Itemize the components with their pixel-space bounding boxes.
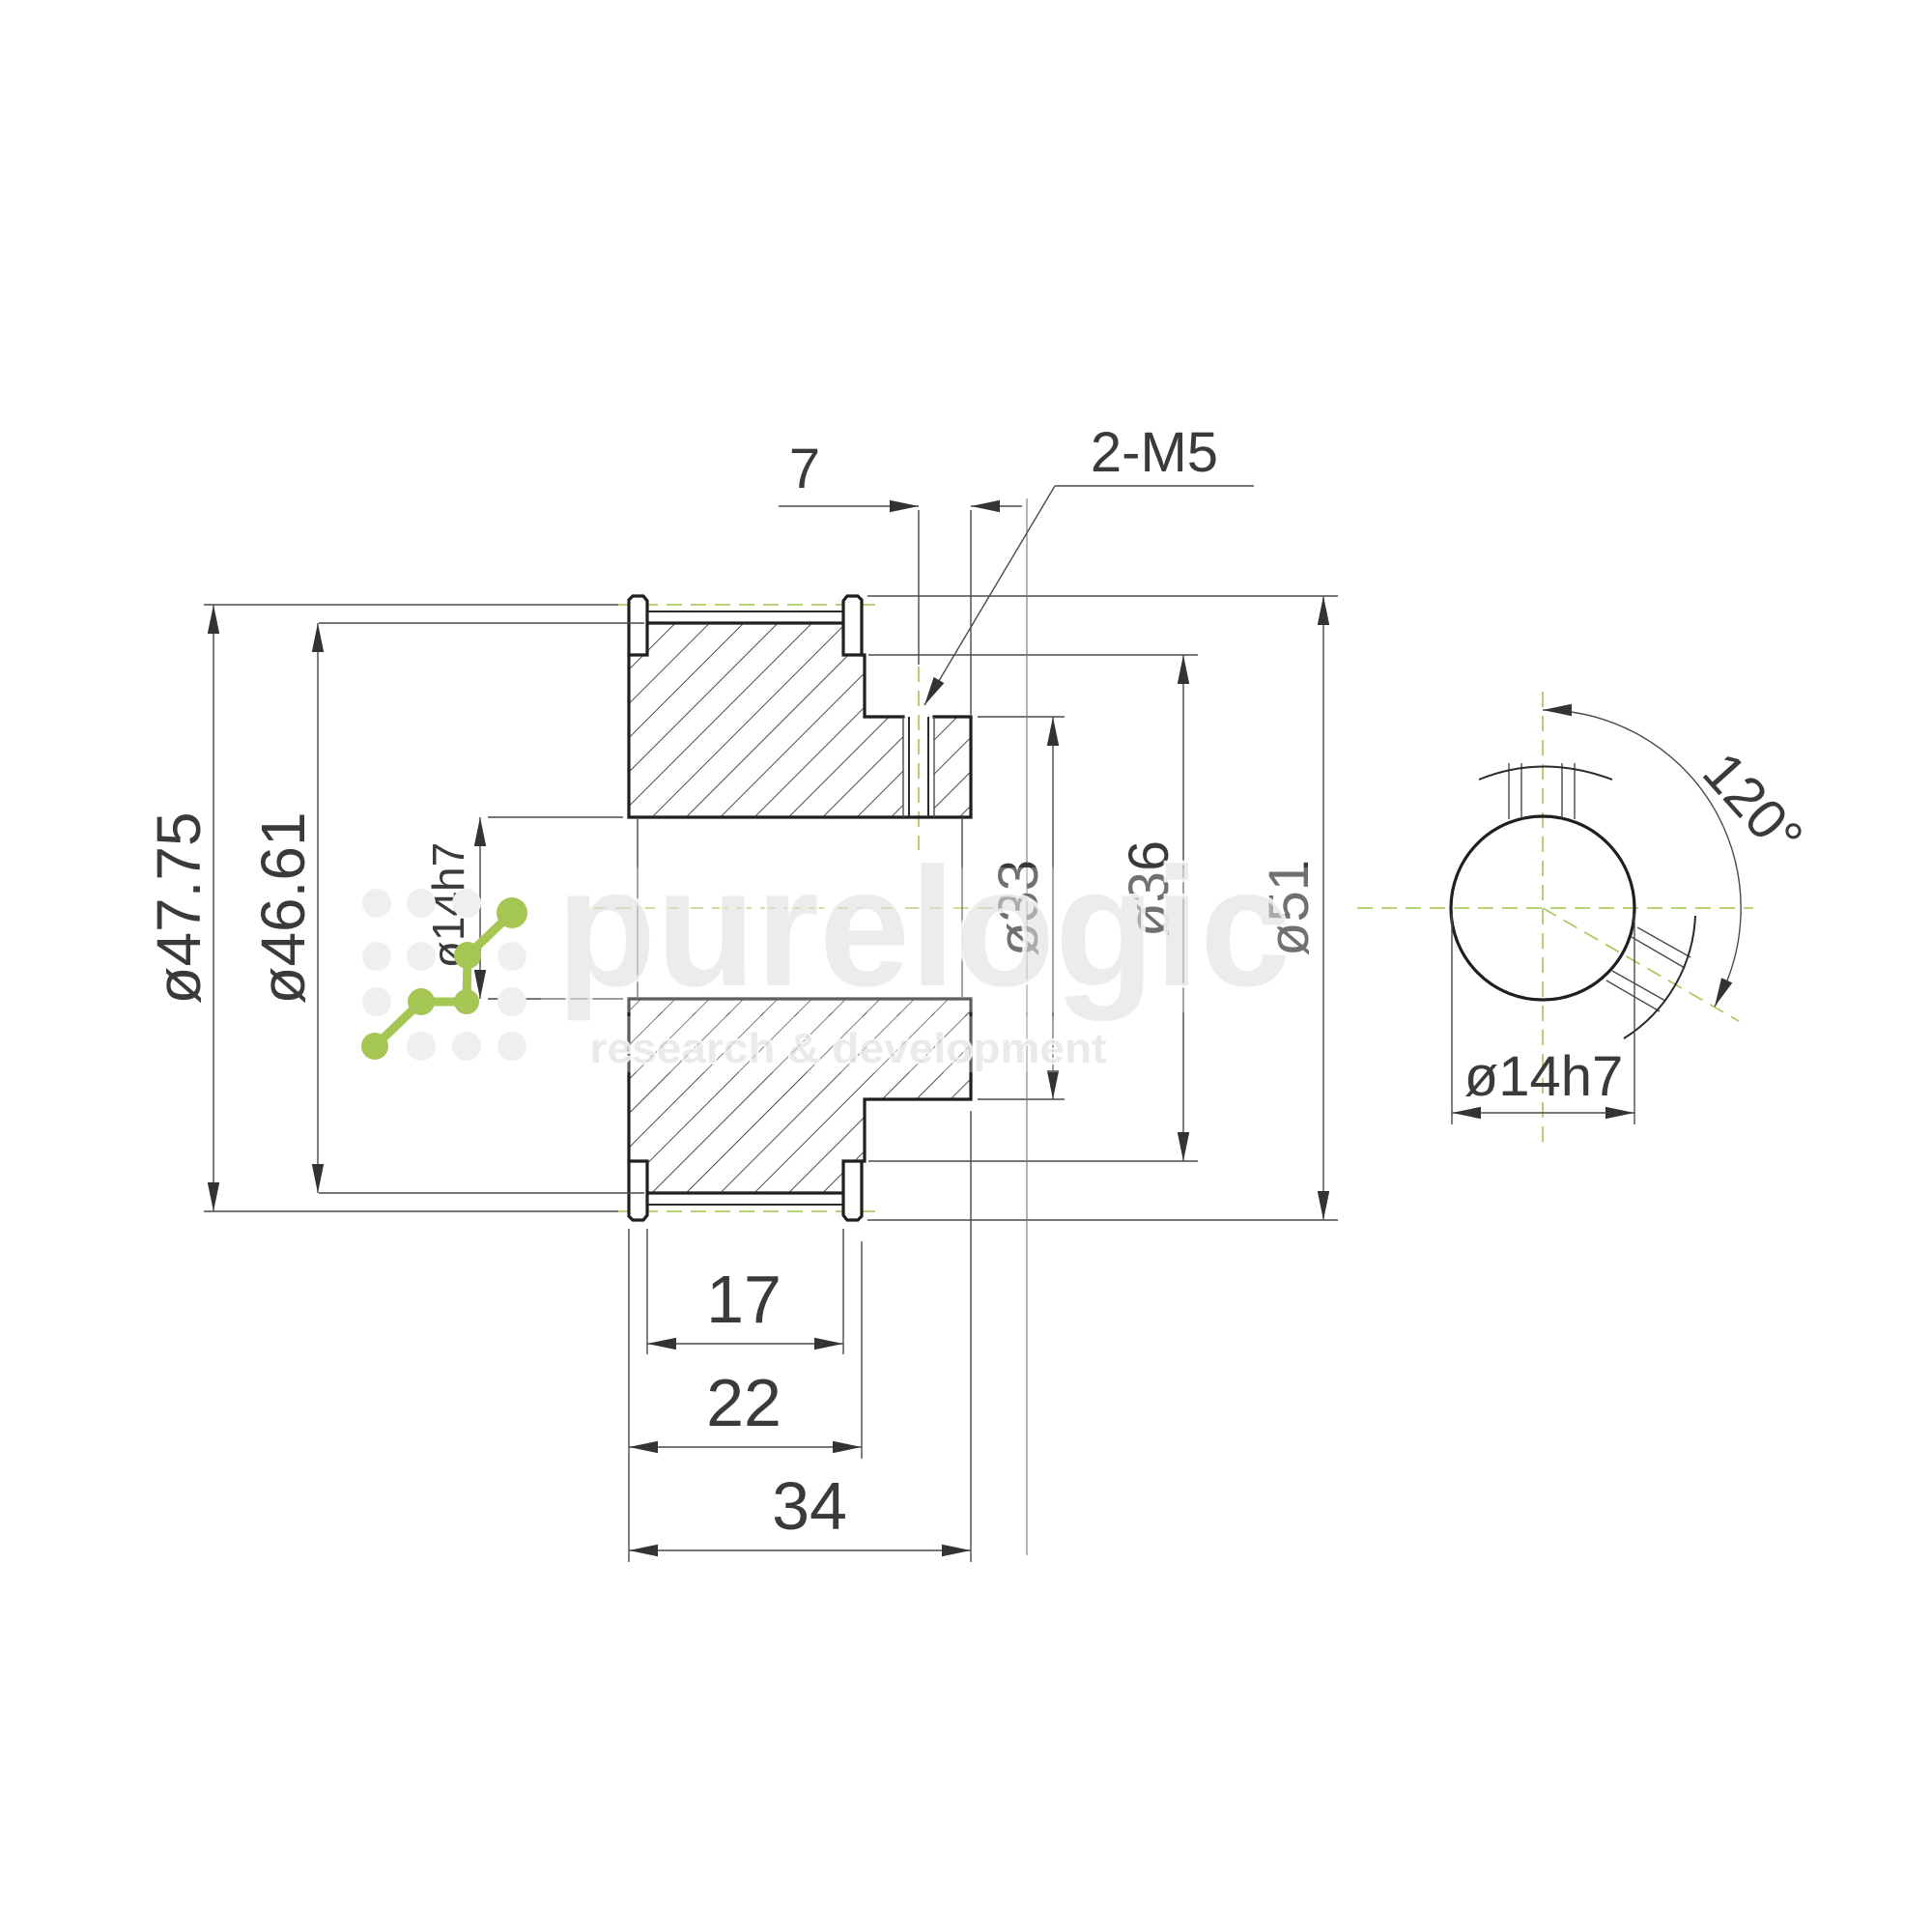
dim-belt-width: 17 (647, 1262, 843, 1350)
flange-cap-bottom-left (629, 1161, 647, 1220)
setscrew-hole-120 (1606, 916, 1695, 1038)
dim-bore-end-label: ø14h7 (1464, 1045, 1623, 1108)
dim-outer-diameter: ø46.61 (248, 623, 324, 1193)
drawing-page: ø47.75 ø46.61 ø14h7 ø33 ø36 (0, 0, 1932, 1932)
end-view: 120° ø14h7 (1357, 692, 1815, 1142)
flange-cap-top-left (629, 596, 647, 655)
watermark-title: purelogic (556, 834, 1291, 1022)
dim-pitch-diameter-label: ø47.75 (144, 811, 213, 1004)
logo-dot-1 (497, 897, 527, 928)
dim-screw-angle: 120° (1543, 704, 1815, 1009)
flange-cap-bottom-right (843, 1161, 862, 1220)
logo-dot-5 (361, 1033, 388, 1060)
watermark-subtitle: research & development (590, 1025, 1107, 1072)
callout-screw-thread-label: 2-M5 (1091, 421, 1218, 484)
callout-screw-thread: 2-M5 (920, 421, 1254, 708)
flange-cap-top-right (843, 596, 862, 655)
logo-dot-4 (408, 988, 435, 1015)
dim-total-width-label: 34 (772, 1468, 847, 1544)
dim-pitch-diameter: ø47.75 (144, 605, 219, 1211)
setscrew-hole-top (1479, 763, 1612, 819)
dim-screw-offset-label: 7 (789, 438, 820, 500)
dim-total-width: 34 (629, 1468, 971, 1556)
watermark: purelogic research & development (362, 834, 1314, 1072)
drawing-canvas: ø47.75 ø46.61 ø14h7 ø33 ø36 (0, 0, 1932, 1932)
dim-screw-angle-label: 120° (1690, 741, 1815, 869)
dim-belt-width-label: 17 (706, 1262, 781, 1337)
dim-body-width: 22 (629, 1365, 862, 1453)
logo-dot-3 (454, 989, 479, 1014)
dim-screw-offset: 7 (779, 438, 1022, 512)
dim-outer-diameter-label: ø46.61 (248, 811, 318, 1004)
logo-dot-2 (454, 942, 481, 969)
dim-body-width-label: 22 (706, 1365, 781, 1440)
